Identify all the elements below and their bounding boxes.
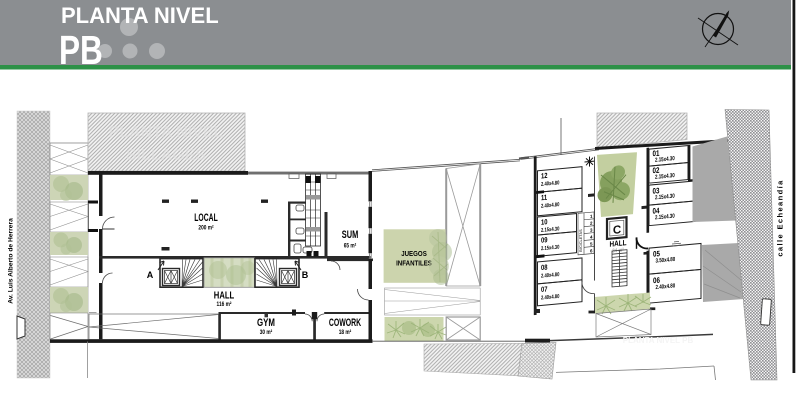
svg-text:COWORK: COWORK (329, 316, 362, 328)
svg-text:C: C (613, 224, 621, 237)
svg-text:PLANTA NIVEL PB: PLANTA NIVEL PB (623, 336, 694, 345)
svg-text:JUEGOS: JUEGOS (401, 251, 427, 259)
svg-text:A: A (147, 270, 154, 280)
svg-text:65 m²: 65 m² (344, 243, 357, 250)
svg-text:07: 07 (541, 286, 548, 294)
svg-text:BICICLETAS: BICICLETAS (579, 229, 583, 252)
svg-text:B: B (302, 270, 309, 280)
svg-text:10: 10 (541, 219, 548, 227)
svg-text:GYM: GYM (257, 317, 275, 330)
svg-text:Av. Luis Alberto de Herrera: Av. Luis Alberto de Herrera (8, 218, 15, 304)
svg-text:11: 11 (541, 194, 547, 202)
svg-text:LOCAL: LOCAL (194, 211, 218, 223)
svg-text:SILLAGES: SILLAGES (126, 147, 206, 164)
svg-text:SUM: SUM (342, 229, 358, 242)
svg-text:30 m²: 30 m² (260, 330, 273, 337)
svg-text:09: 09 (541, 237, 548, 245)
svg-text:08: 08 (541, 264, 548, 272)
svg-text:calle Echeandía: calle Echeandía (776, 179, 785, 256)
svg-text:INFANTILES: INFANTILES (396, 260, 432, 268)
svg-text:PLANTA NIVEL: PLANTA NIVEL (109, 124, 224, 141)
svg-text:116 m²: 116 m² (217, 302, 232, 309)
svg-text:200 m²: 200 m² (198, 225, 213, 232)
svg-text:18 m²: 18 m² (339, 330, 352, 337)
svg-text:HALL: HALL (214, 289, 235, 300)
svg-text:12: 12 (541, 172, 548, 180)
svg-text:PLANTA NIVEL: PLANTA NIVEL (61, 3, 219, 28)
